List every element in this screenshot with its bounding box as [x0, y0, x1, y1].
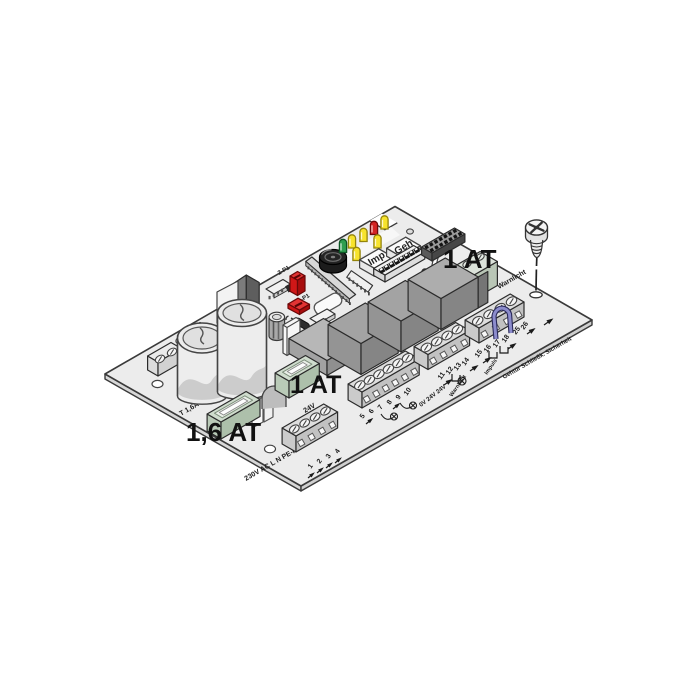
- svg-text:1,6 AT: 1,6 AT: [186, 417, 261, 447]
- svg-text:1 AT: 1 AT: [443, 244, 497, 274]
- svg-text:1 AT: 1 AT: [290, 371, 341, 399]
